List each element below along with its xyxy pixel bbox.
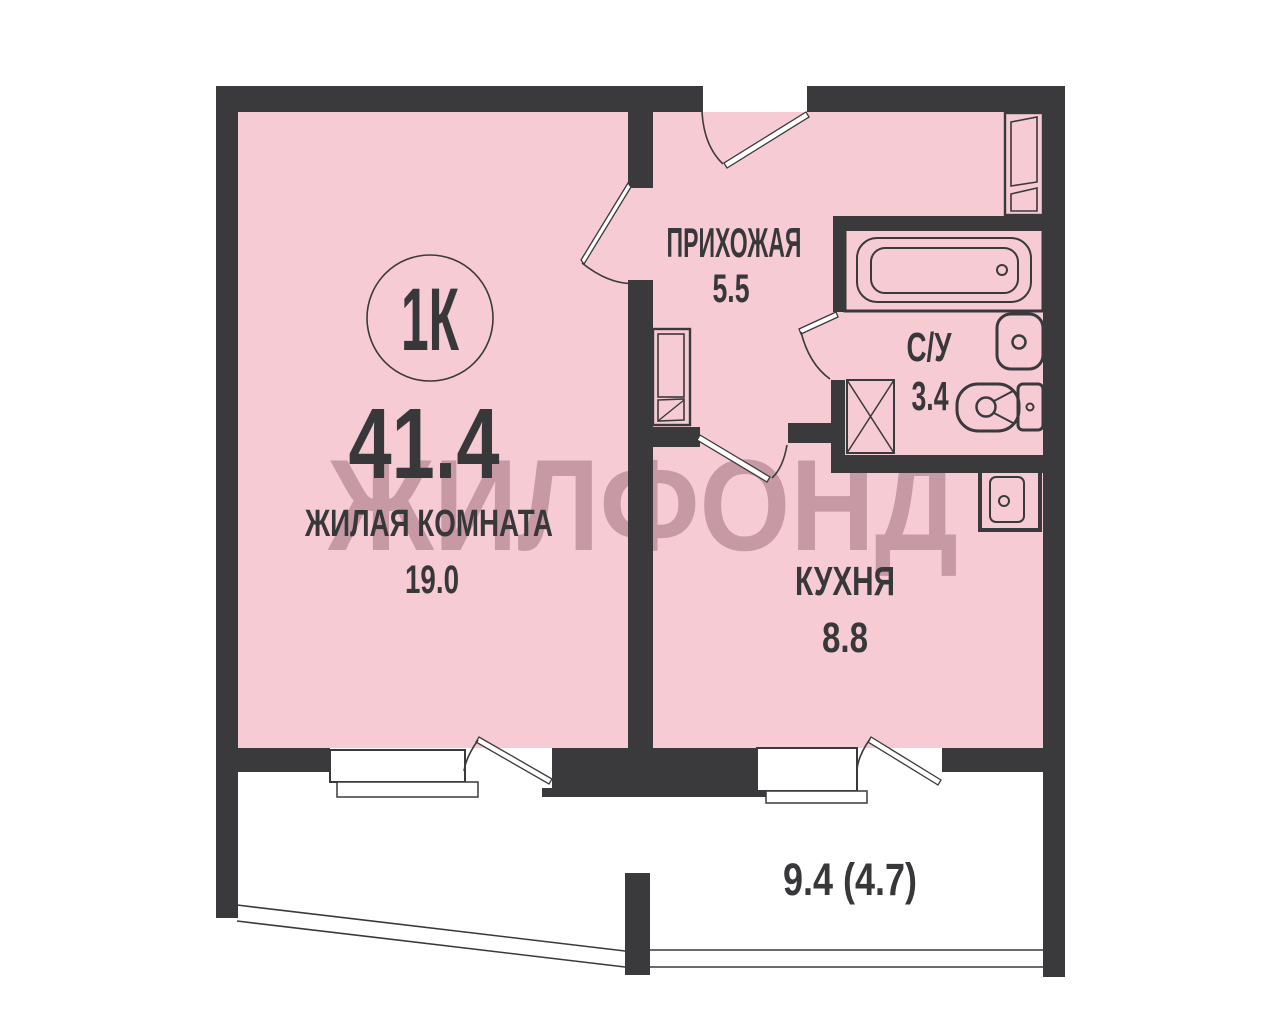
wall-top-right [807,86,1065,112]
wall-bath-bottom [831,455,1043,473]
hallway-area: 5.5 [713,267,750,311]
living-room-window [330,750,465,782]
wall-balcony-pier [625,873,650,975]
wall-bath-left-lower [831,380,845,455]
wall-top-left [216,86,703,112]
floor-plan-canvas: ЖИЛФОНД [0,0,1280,1024]
wall-right [1043,86,1065,977]
wall-bottom-2 [552,748,757,788]
living-room-area: 19.0 [405,558,459,602]
living-room-name: ЖИЛАЯ КОМНАТА [304,503,553,545]
floor-plan: ЖИЛФОНД [0,0,1280,1024]
living-room-window-sill [337,782,478,797]
kitchen-window-sill [766,791,867,803]
bathroom-area: 3.4 [912,373,949,419]
room-count-badge: 1К [401,269,459,369]
kitchen-area: 8.8 [822,614,868,662]
hallway-name: ПРИХОЖАЯ [667,219,802,266]
total-area-label: 41.4 [349,388,500,500]
wall-divider-upper [628,112,653,188]
wall-hall-bottom-left [652,427,700,447]
kitchen-name: КУХНЯ [795,558,895,604]
bathroom-name: С/У [907,324,952,370]
balcony-area: 9.4 (4.7) [783,854,917,905]
wall-divider-lower [628,280,653,748]
kitchen-window [757,748,857,791]
wall-bottom-1 [216,748,330,772]
wall-bottom-ledge [542,788,767,797]
wall-left [216,86,238,918]
wall-bottom-3 [942,748,1043,772]
